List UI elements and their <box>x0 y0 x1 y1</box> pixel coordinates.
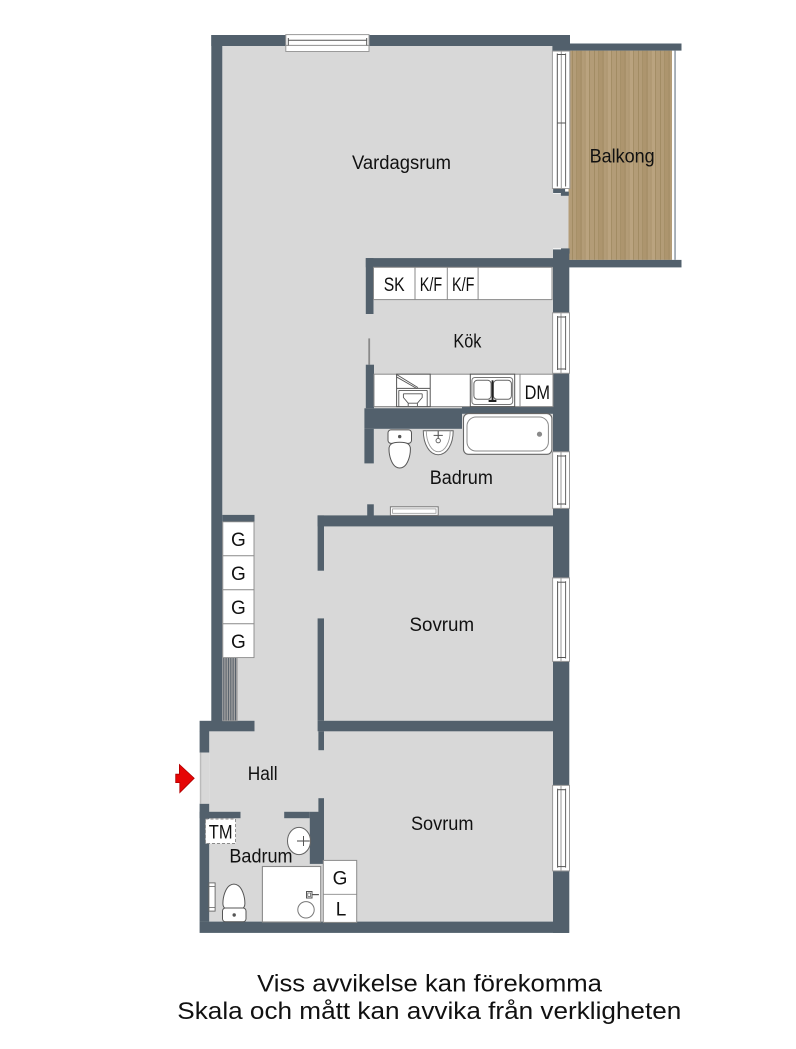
svg-text:SK: SK <box>384 275 405 296</box>
svg-text:Badrum: Badrum <box>430 468 493 489</box>
svg-text:G: G <box>231 530 246 551</box>
svg-text:TM: TM <box>209 823 233 844</box>
svg-text:Kök: Kök <box>453 331 481 352</box>
svg-text:Hall: Hall <box>248 764 278 785</box>
svg-text:Sovrum: Sovrum <box>411 814 474 835</box>
svg-text:K/F: K/F <box>452 275 474 296</box>
svg-text:L: L <box>336 900 347 921</box>
svg-text:Skala och mått kan avvika från: Skala och mått kan avvika från verklighe… <box>177 998 681 1025</box>
svg-text:Balkong: Balkong <box>590 146 655 167</box>
svg-text:DM: DM <box>525 383 550 404</box>
svg-text:G: G <box>231 598 246 619</box>
svg-text:G: G <box>231 564 246 585</box>
svg-text:Badrum: Badrum <box>229 847 292 868</box>
svg-text:Viss avvikelse kan förekomma: Viss avvikelse kan förekomma <box>257 971 602 998</box>
svg-text:Sovrum: Sovrum <box>410 615 475 636</box>
svg-text:G: G <box>231 632 246 653</box>
svg-text:K/F: K/F <box>420 275 442 296</box>
svg-text:Vardagsrum: Vardagsrum <box>352 153 451 174</box>
svg-text:G: G <box>333 869 348 890</box>
